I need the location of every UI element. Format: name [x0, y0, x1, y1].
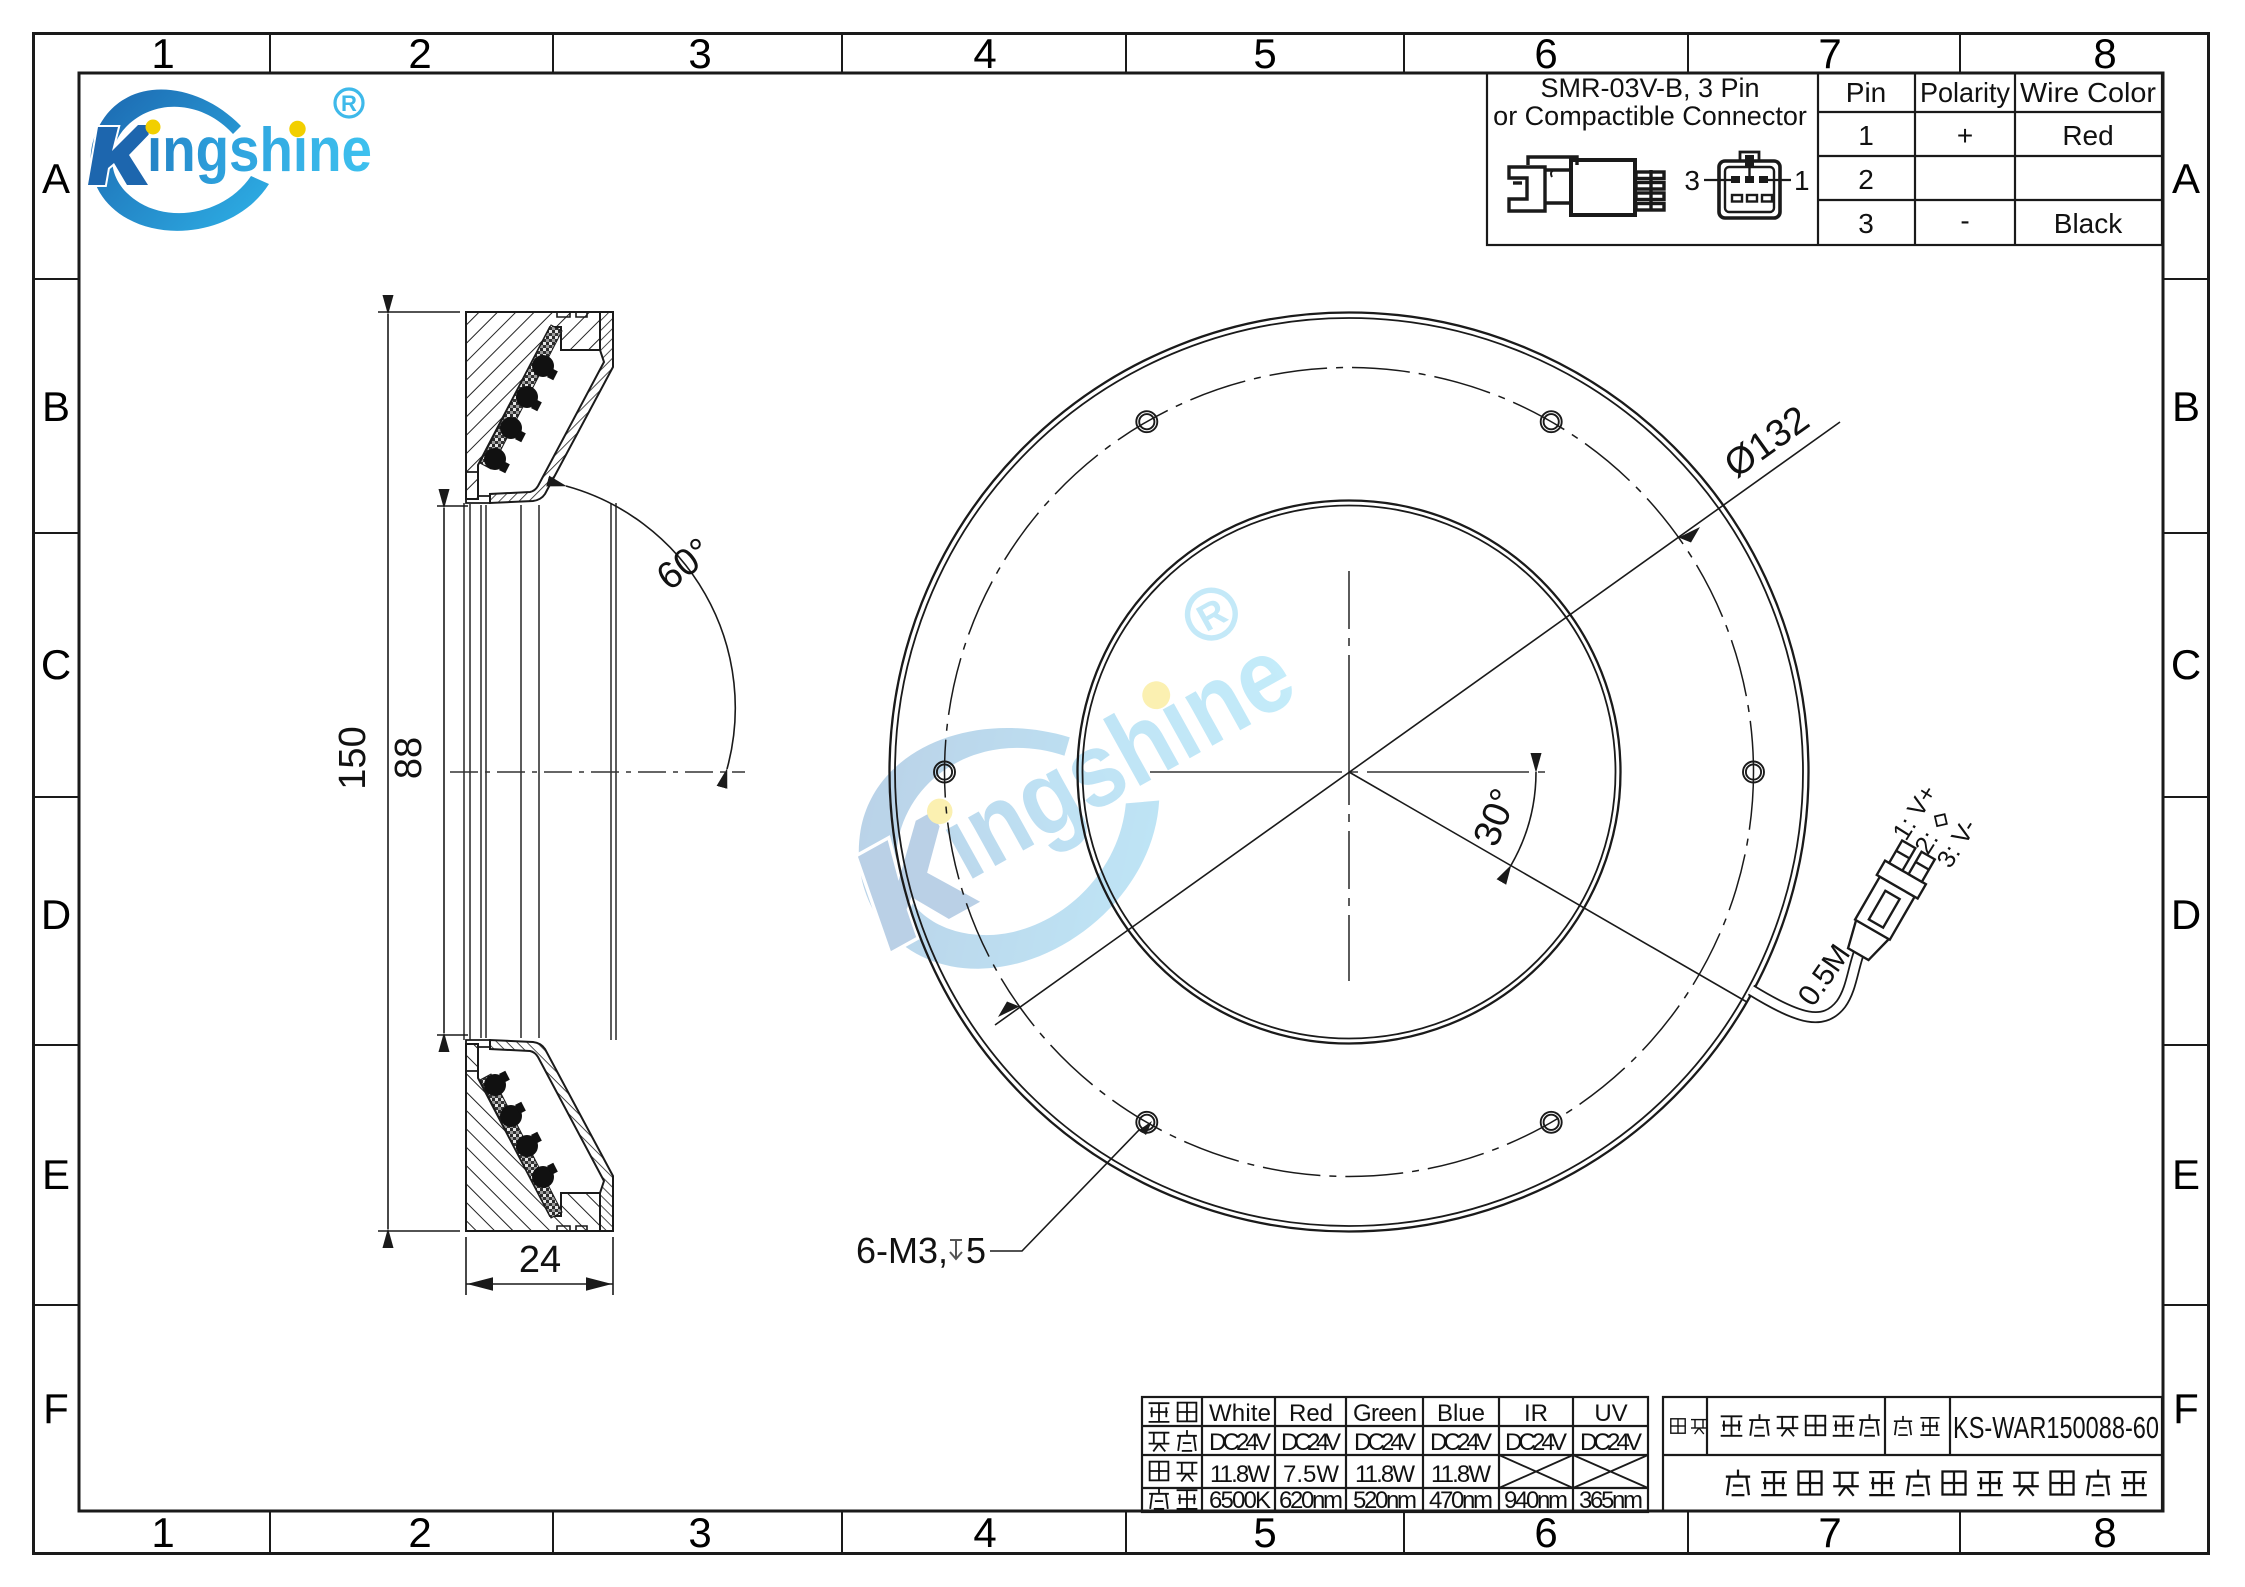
svg-text:940nm: 940nm	[1504, 1487, 1568, 1514]
svg-text:4: 4	[973, 1509, 996, 1556]
svg-text:White: White	[1209, 1400, 1271, 1427]
svg-text:5: 5	[1253, 1509, 1276, 1556]
svg-text:6500K: 6500K	[1209, 1487, 1271, 1514]
svg-text:DC24V: DC24V	[1430, 1429, 1492, 1456]
svg-text:520nm: 520nm	[1353, 1487, 1417, 1514]
svg-text:24: 24	[519, 1239, 561, 1281]
svg-text:5: 5	[966, 1230, 986, 1271]
svg-text:7: 7	[1818, 30, 1841, 77]
svg-text:3: 3	[688, 1509, 711, 1556]
svg-text:6: 6	[1534, 30, 1557, 77]
svg-text:4: 4	[973, 30, 996, 77]
svg-text:UV: UV	[1594, 1400, 1627, 1427]
svg-text:-: -	[1960, 205, 1969, 236]
svg-text:SMR-03V-B, 3 Pin: SMR-03V-B, 3 Pin	[1540, 73, 1759, 103]
svg-text:B: B	[2172, 383, 2200, 430]
svg-text:8: 8	[2093, 30, 2116, 77]
svg-text:5: 5	[1253, 30, 1276, 77]
svg-text:B: B	[42, 383, 70, 430]
svg-text:11.8W: 11.8W	[1210, 1461, 1270, 1488]
svg-text:7: 7	[1818, 1509, 1841, 1556]
svg-text:Blue: Blue	[1437, 1400, 1485, 1427]
svg-text:C: C	[2171, 641, 2201, 688]
svg-text:2: 2	[408, 1509, 431, 1556]
svg-text:88: 88	[388, 737, 430, 779]
svg-text:11.8W: 11.8W	[1355, 1461, 1415, 1488]
svg-text:3: 3	[688, 30, 711, 77]
svg-text:7.5W: 7.5W	[1283, 1461, 1339, 1488]
svg-text:1: 1	[151, 30, 174, 77]
svg-text:6-M3,: 6-M3,	[856, 1230, 948, 1271]
svg-text:Red: Red	[2062, 120, 2113, 151]
svg-text:Pin: Pin	[1846, 77, 1886, 108]
svg-text:Wire Color: Wire Color	[2020, 77, 2156, 108]
svg-text:E: E	[2172, 1151, 2200, 1198]
svg-text:2: 2	[408, 30, 431, 77]
svg-text:11.8W: 11.8W	[1431, 1461, 1491, 1488]
svg-text:DC24V: DC24V	[1354, 1429, 1416, 1456]
svg-text:F: F	[43, 1385, 69, 1432]
svg-text:A: A	[2172, 155, 2200, 202]
svg-text:6: 6	[1534, 1509, 1557, 1556]
svg-text:DC24V: DC24V	[1505, 1429, 1567, 1456]
svg-text:A: A	[42, 155, 70, 202]
svg-text:C: C	[41, 641, 71, 688]
svg-text:150: 150	[332, 726, 374, 789]
svg-text:1: 1	[1858, 120, 1874, 151]
svg-text:Red: Red	[1289, 1400, 1333, 1427]
svg-text:470nm: 470nm	[1429, 1487, 1493, 1514]
svg-text:E: E	[42, 1151, 70, 1198]
svg-text:IR: IR	[1524, 1400, 1548, 1427]
svg-text:2: 2	[1858, 164, 1874, 195]
svg-text:3: 3	[1684, 165, 1700, 196]
svg-text:1: 1	[1794, 165, 1810, 196]
svg-text:Black: Black	[2054, 208, 2123, 239]
svg-text:1: 1	[151, 1509, 174, 1556]
svg-text:8: 8	[2093, 1509, 2116, 1556]
svg-text:or Compactible Connector: or Compactible Connector	[1493, 101, 1807, 131]
svg-text:Green: Green	[1353, 1400, 1417, 1427]
svg-text:KS-WAR150088-60: KS-WAR150088-60	[1953, 1410, 2159, 1445]
svg-text:Polarity: Polarity	[1920, 77, 2010, 108]
svg-text:620nm: 620nm	[1279, 1487, 1343, 1514]
svg-text:3: 3	[1858, 208, 1874, 239]
svg-text:F: F	[2173, 1385, 2199, 1432]
svg-text:+: +	[1957, 120, 1973, 151]
svg-text:DC24V: DC24V	[1580, 1429, 1642, 1456]
svg-text:DC24V: DC24V	[1209, 1429, 1271, 1456]
svg-text:365nm: 365nm	[1579, 1487, 1643, 1514]
svg-text:DC24V: DC24V	[1281, 1429, 1341, 1456]
svg-text:D: D	[2171, 891, 2201, 938]
svg-text:D: D	[41, 891, 71, 938]
